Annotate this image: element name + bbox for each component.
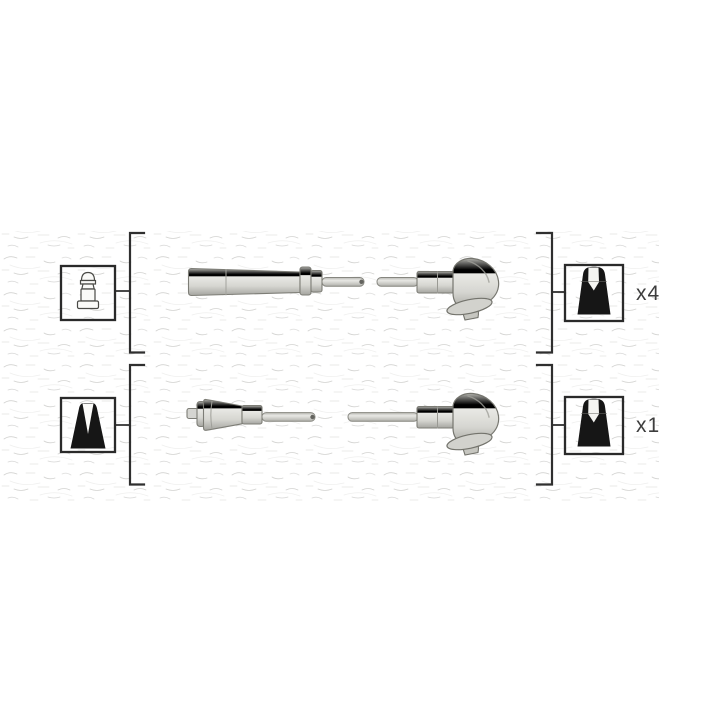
cable-break-end <box>359 280 363 284</box>
cable-segment <box>348 413 418 422</box>
cable-break-end <box>310 415 314 419</box>
boot-neck <box>311 271 322 293</box>
terminal-stud <box>187 409 198 419</box>
quantity-label-set-main: x4 <box>636 283 660 304</box>
boot-neck <box>242 406 262 425</box>
diagram-canvas <box>0 0 720 720</box>
cable-segment <box>377 278 418 287</box>
cable-segment <box>322 278 364 287</box>
straight-boot <box>189 269 301 296</box>
quantity-label-coil-lead: x1 <box>636 415 660 436</box>
cable-segment <box>262 413 315 422</box>
boot-collar <box>300 267 311 295</box>
watermark-texture <box>0 231 659 505</box>
product-diagram: x4 x1 <box>0 0 720 720</box>
